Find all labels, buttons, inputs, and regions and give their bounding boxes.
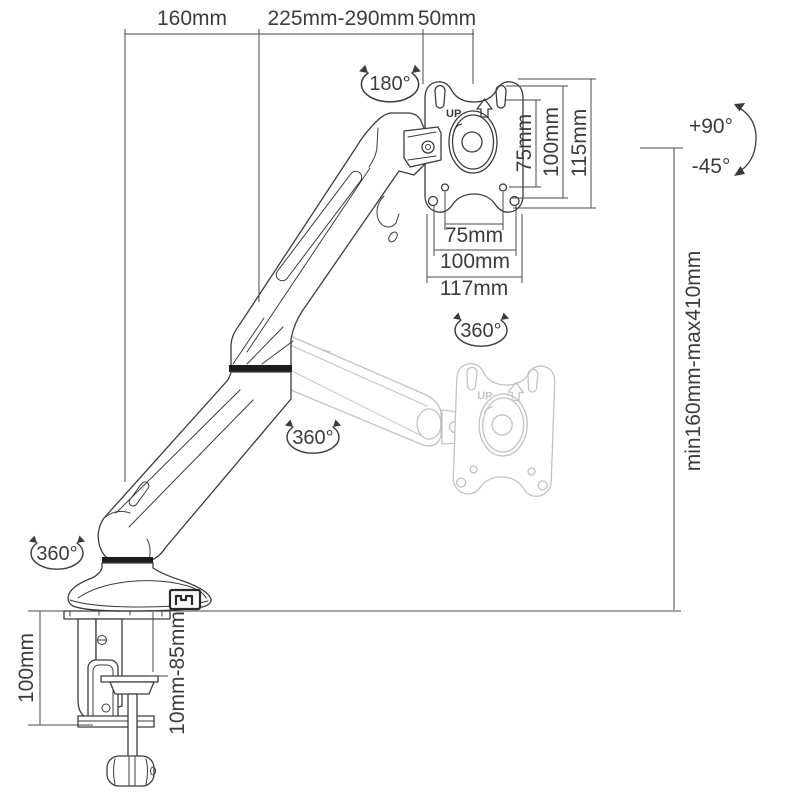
dim-vesa-v115: 115mm	[568, 109, 591, 177]
tilt-range-symbol	[734, 103, 756, 176]
clamp-knob	[107, 756, 156, 786]
ghost-arm-position: UP	[250, 328, 555, 497]
head-swivel-label: 180°	[369, 73, 410, 95]
head-swivel-symbol: 180°	[359, 65, 421, 102]
dimension-labels: 160mm 225mm-290mm 50mm 75mm 100mm 115mm …	[15, 7, 733, 735]
base-swivel-label: 360°	[36, 543, 77, 565]
plate-rotation-label: 360°	[460, 320, 501, 342]
base-rotation-band	[102, 557, 153, 563]
lower-riser-arm	[98, 372, 291, 561]
dim-clamp-throat: 100mm	[15, 633, 38, 703]
dim-tilt-down: -45°	[692, 155, 731, 178]
dim-vesa-h117: 117mm	[440, 277, 508, 300]
dim-vesa-v75: 75mm	[513, 114, 536, 172]
plate-rotation-symbol: 360°	[453, 313, 509, 347]
dim-vesa-h75: 75mm	[445, 224, 503, 247]
desk-base	[68, 557, 211, 616]
arm-swivel-symbol: 360°	[285, 420, 341, 454]
dim-vesa-h100: 100mm	[440, 250, 510, 273]
ghost-vesa-plate: UP	[453, 363, 555, 497]
dim-head-offset: 50mm	[418, 7, 476, 30]
arm-swivel-label: 360°	[292, 427, 333, 449]
gas-spring-upper-arm	[231, 113, 426, 366]
desk-clamp	[64, 611, 170, 786]
head-joint-bracket	[404, 127, 441, 167]
clamp-screw-shaft	[128, 694, 137, 757]
dim-desk-thickness: 10mm-85mm	[166, 611, 189, 735]
dim-rear-offset: 160mm	[157, 7, 227, 30]
vesa-up-label: UP	[446, 108, 461, 120]
cable-clip	[170, 590, 200, 609]
dim-arm-reach: 225mm-290mm	[267, 7, 414, 30]
ghost-vesa-up-label: UP	[477, 390, 493, 403]
base-swivel-symbol: 360°	[29, 536, 85, 570]
monitor-arm-dimension-diagram: UP UP	[0, 0, 789, 800]
dim-height-range: min160mm-max410mm	[682, 251, 705, 472]
diagram-canvas: UP UP	[0, 0, 789, 800]
clamp-pad-plate	[101, 676, 158, 682]
elbow-rotation-band	[229, 365, 292, 372]
dim-vesa-v100: 100mm	[540, 107, 563, 177]
dim-tilt-up: +90°	[689, 115, 733, 138]
